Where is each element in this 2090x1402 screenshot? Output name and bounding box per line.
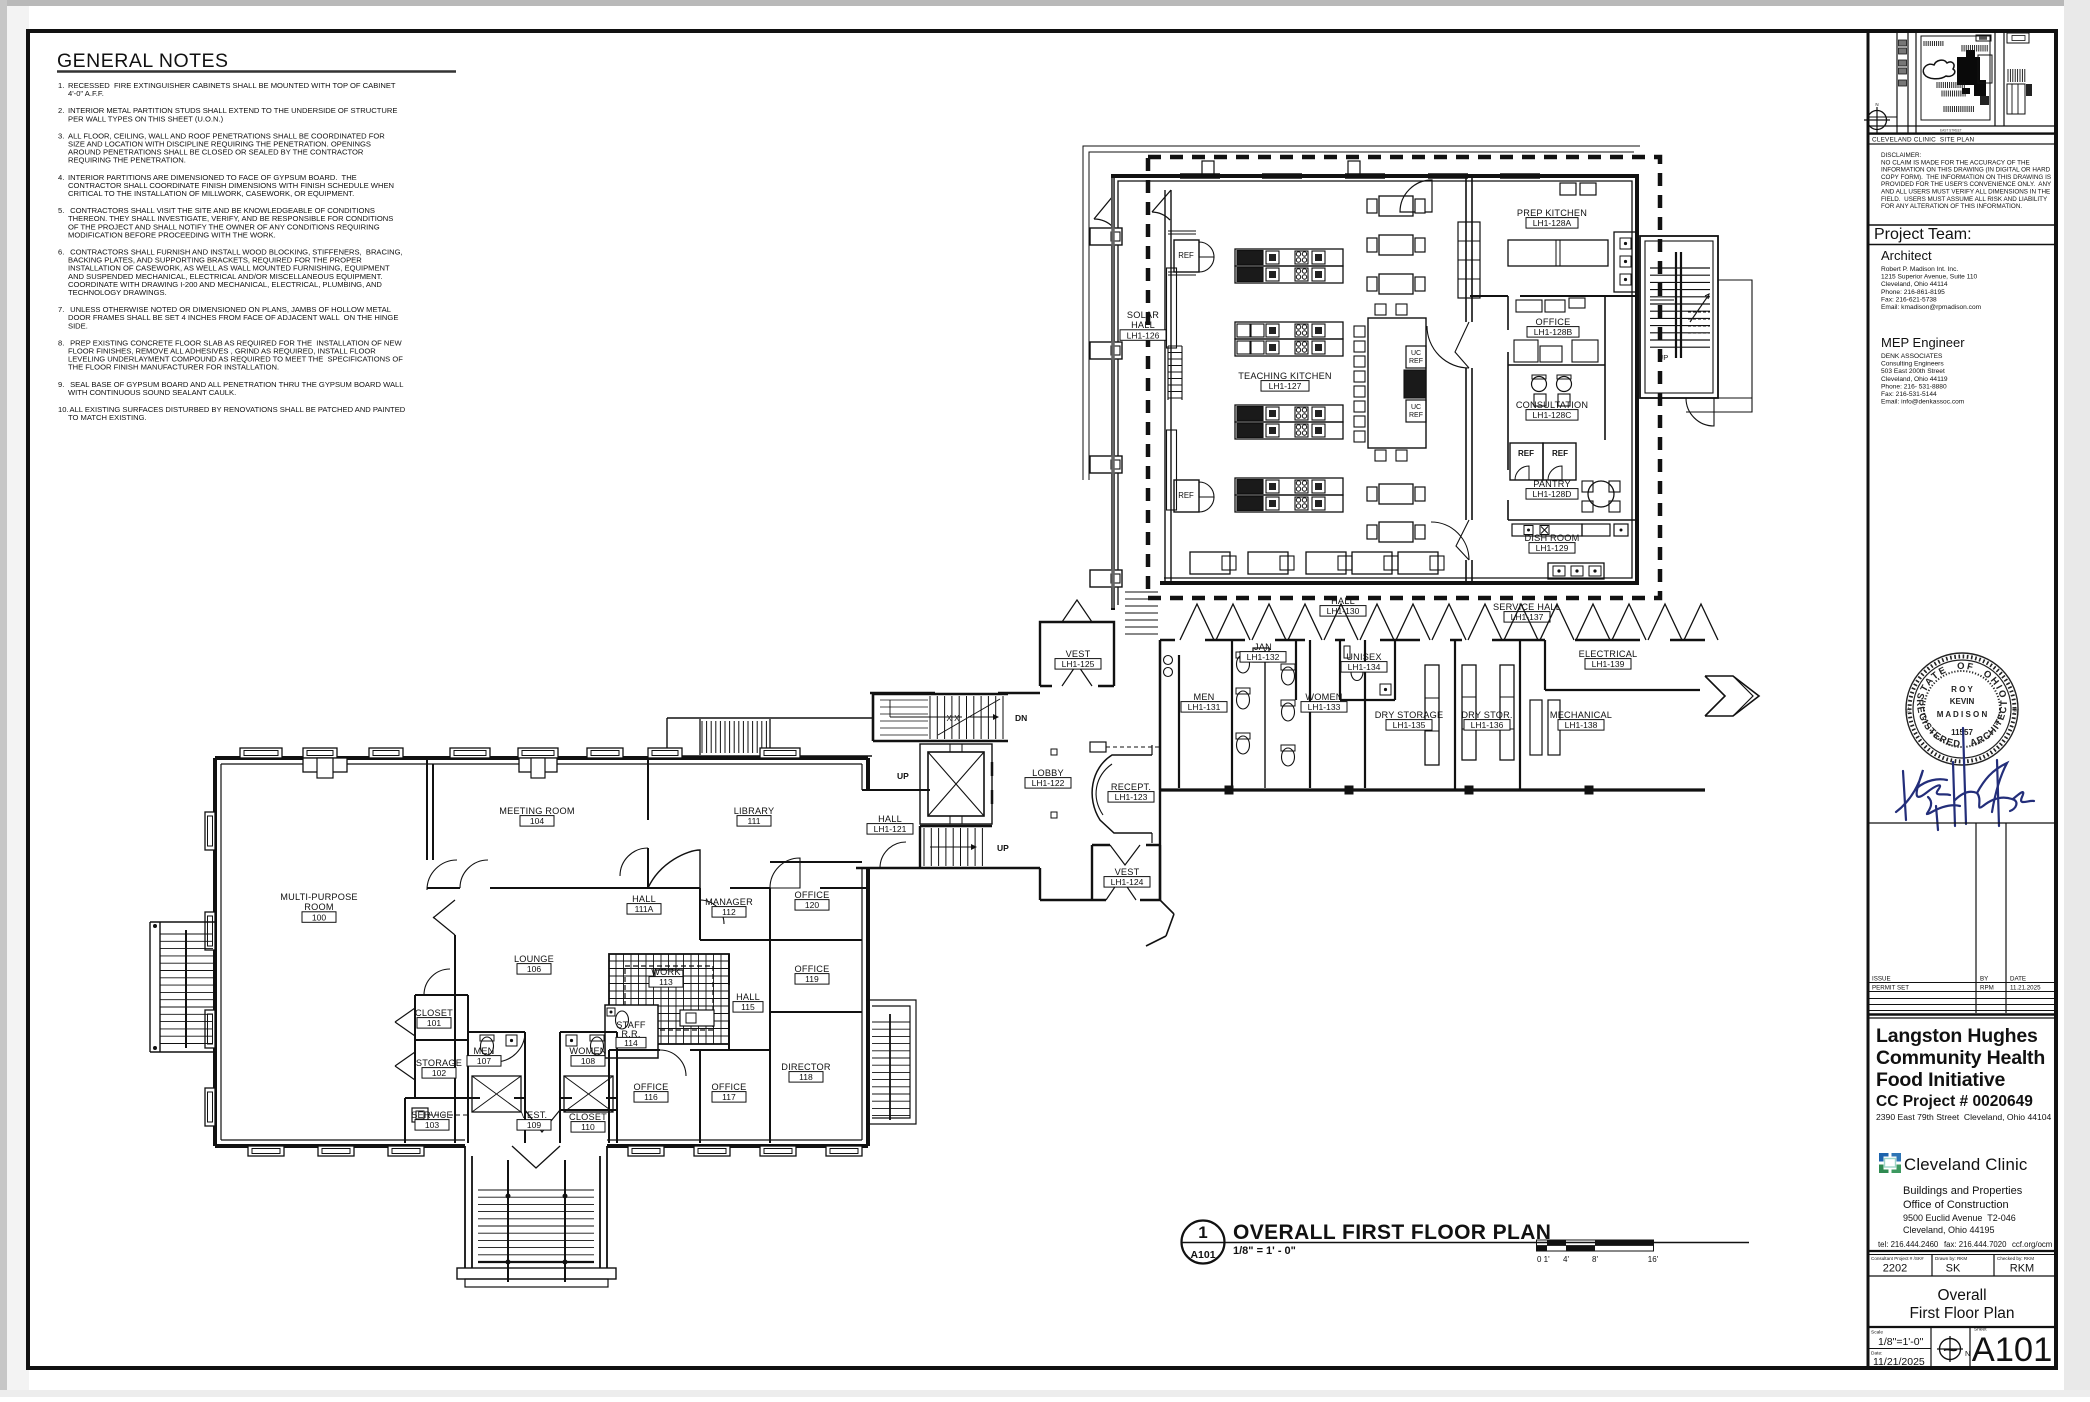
svg-text:16': 16' xyxy=(1648,1255,1659,1264)
svg-text:PREP KITCHEN: PREP KITCHEN xyxy=(1517,208,1587,218)
svg-text:CLOSET: CLOSET xyxy=(569,1112,607,1122)
svg-text:LH1-128A: LH1-128A xyxy=(1533,218,1572,228)
svg-text:LH1-128C: LH1-128C xyxy=(1533,410,1572,420)
svg-text:A101: A101 xyxy=(1190,1249,1215,1261)
svg-text:Community Health: Community Health xyxy=(1876,1047,2045,1069)
svg-text:INFORMATION ON THIS DRAWING (I: INFORMATION ON THIS DRAWING (IN DIGITAL … xyxy=(1881,167,2051,174)
svg-text:1: 1 xyxy=(1198,1223,1207,1242)
svg-text:HALL: HALL xyxy=(1131,320,1155,330)
svg-text:2202: 2202 xyxy=(1883,1263,1907,1275)
svg-text:MEETING ROOM: MEETING ROOM xyxy=(499,806,574,816)
svg-text:MODIFICATION BEFORE PROCEEDING: MODIFICATION BEFORE PROCEEDING WITH THE … xyxy=(68,230,276,239)
svg-text:TO MATCH EXISTING.: TO MATCH EXISTING. xyxy=(68,413,147,422)
svg-text:Phone: 216-861-8195: Phone: 216-861-8195 xyxy=(1881,289,1945,296)
svg-text:CRITICAL TO THE INSTALLATION O: CRITICAL TO THE INSTALLATION OF MILLWORK… xyxy=(68,189,354,198)
svg-text:Checked by: RKM: Checked by: RKM xyxy=(1997,1256,2034,1261)
svg-text:LH1-131: LH1-131 xyxy=(1188,702,1221,712)
svg-text:112: 112 xyxy=(722,907,736,917)
svg-text:HALL: HALL xyxy=(632,894,656,904)
svg-text:Buildings and Properties: Buildings and Properties xyxy=(1903,1185,2023,1197)
svg-text:ROOM: ROOM xyxy=(304,902,333,912)
svg-text:106: 106 xyxy=(527,964,542,974)
svg-text:LIBRARY: LIBRARY xyxy=(734,806,775,816)
svg-text:PROVIDED FOR THE USER'S CONVEN: PROVIDED FOR THE USER'S CONVENIENCE ONLY… xyxy=(1881,181,2052,188)
svg-text:R O Y: R O Y xyxy=(1951,685,1973,694)
svg-text:HALL: HALL xyxy=(736,992,760,1002)
svg-text:LH1-127: LH1-127 xyxy=(1269,381,1302,391)
svg-text:REF: REF xyxy=(1409,412,1423,419)
svg-text:Email: info@denkassoc.com: Email: info@denkassoc.com xyxy=(1881,399,1965,406)
svg-text:LH1-133: LH1-133 xyxy=(1308,702,1341,712)
svg-text:THE FLOOR FINISH MANUFACTURER: THE FLOOR FINISH MANUFACTURER FOR INSTAL… xyxy=(68,363,279,372)
svg-text:NO CLAIM IS MADE FOR THE ACCUR: NO CLAIM IS MADE FOR THE ACCURACY OF THE xyxy=(1881,159,2030,166)
svg-text:102: 102 xyxy=(432,1068,447,1078)
svg-text:Cleveland, Ohio 44195: Cleveland, Ohio 44195 xyxy=(1903,1225,1995,1235)
svg-text:107: 107 xyxy=(477,1056,492,1066)
svg-text:111A: 111A xyxy=(635,904,654,914)
svg-text:LH1-125: LH1-125 xyxy=(1062,659,1095,669)
svg-text:LH1-128D: LH1-128D xyxy=(1533,489,1572,499)
svg-text:MEN: MEN xyxy=(473,1046,494,1056)
svg-text:WORK: WORK xyxy=(651,967,681,977)
svg-text:119: 119 xyxy=(805,974,819,984)
svg-text:DIRECTOR: DIRECTOR xyxy=(781,1062,831,1072)
svg-text:3.: 3. xyxy=(58,131,64,140)
svg-text:LH1-121: LH1-121 xyxy=(874,824,907,834)
svg-text:4': 4' xyxy=(1563,1255,1569,1264)
svg-text:N: N xyxy=(1875,102,1878,107)
svg-text:RKM: RKM xyxy=(2010,1263,2034,1275)
svg-text:Phone: 216- 531-8880: Phone: 216- 531-8880 xyxy=(1881,383,1947,390)
svg-text:First Floor Plan: First Floor Plan xyxy=(1909,1305,2014,1322)
svg-text:tel: 216.444.2460: tel: 216.444.2460 xyxy=(1878,1240,1939,1249)
svg-text:PANTRY: PANTRY xyxy=(1533,479,1571,489)
svg-text:Consultant Project # /SK#: Consultant Project # /SK# xyxy=(1871,1256,1924,1261)
svg-text:Langston Hughes: Langston Hughes xyxy=(1876,1025,2038,1047)
svg-text:5.: 5. xyxy=(58,206,64,215)
svg-text:AND ALL USERS MUST VERIFY ALL: AND ALL USERS MUST VERIFY ALL DIMENSIONS… xyxy=(1881,189,2050,196)
svg-text:10.: 10. xyxy=(58,405,69,414)
svg-text:X X: X X xyxy=(947,714,961,723)
svg-text:WITH CONTINUOUS SOUND SEALANT: WITH CONTINUOUS SOUND SEALANT CAULK. xyxy=(68,388,236,397)
svg-text:OFFICE: OFFICE xyxy=(1536,317,1571,327)
svg-text:Fax: 216-531-5144: Fax: 216-531-5144 xyxy=(1881,391,1937,398)
svg-text:109: 109 xyxy=(527,1120,542,1130)
svg-text:4'-0" A.F.F.: 4'-0" A.F.F. xyxy=(68,89,104,98)
svg-text:MEP Engineer: MEP Engineer xyxy=(1881,335,1965,350)
svg-text:DOOR FRAMES SHALL BE SET 4 INC: DOOR FRAMES SHALL BE SET 4 INCHES FROM F… xyxy=(68,313,398,322)
svg-text:7.: 7. xyxy=(58,305,64,314)
svg-text:Overall: Overall xyxy=(1937,1287,1986,1304)
svg-text:RECESSED FIRE EXTINGUISHER CA: RECESSED FIRE EXTINGUISHER CABINETS SHAL… xyxy=(68,81,396,90)
svg-text:SERVICE HALL: SERVICE HALL xyxy=(1493,602,1561,612)
svg-text:1215 Superior Avenue, Suite 11: 1215 Superior Avenue, Suite 110 xyxy=(1881,274,1978,281)
svg-text:UNISEX: UNISEX xyxy=(1346,652,1381,662)
svg-text:SK: SK xyxy=(1946,1263,1961,1275)
svg-text:A101: A101 xyxy=(1972,1331,2053,1369)
svg-text:103: 103 xyxy=(425,1120,440,1130)
svg-text:108: 108 xyxy=(581,1056,596,1066)
svg-text:Email: kmadison@rpmadison.com: Email: kmadison@rpmadison.com xyxy=(1881,304,1982,311)
svg-text:VEST.: VEST. xyxy=(521,1110,548,1120)
svg-text:9.: 9. xyxy=(58,380,64,389)
svg-text:LH1-134: LH1-134 xyxy=(1348,662,1381,672)
svg-text:LH1-126: LH1-126 xyxy=(1127,330,1160,340)
svg-text:OFFICE: OFFICE xyxy=(634,1082,669,1092)
svg-text:PERMIT SET: PERMIT SET xyxy=(1872,985,1909,992)
svg-text:OFFICE: OFFICE xyxy=(795,890,830,900)
svg-text:RPM: RPM xyxy=(1980,985,1994,992)
svg-text:2390 East 79th Street Clevela: 2390 East 79th Street Cleveland, Ohio 44… xyxy=(1876,1112,2052,1122)
svg-text:1/8" = 1' - 0": 1/8" = 1' - 0" xyxy=(1233,1245,1296,1257)
svg-text:UC: UC xyxy=(1411,404,1421,411)
svg-text:PER WALL TYPES ON THIS SHEET (: PER WALL TYPES ON THIS SHEET (U.O.N.) xyxy=(68,114,224,123)
svg-text:Project Team:: Project Team: xyxy=(1874,226,1972,243)
svg-text:SOLAR: SOLAR xyxy=(1127,310,1159,320)
svg-text:11.21.2025: 11.21.2025 xyxy=(2010,985,2041,992)
svg-text:GENERAL NOTES: GENERAL NOTES xyxy=(57,50,229,72)
svg-text:LH1-123: LH1-123 xyxy=(1115,792,1148,802)
svg-text:REQUIRING THE PENETRATION.: REQUIRING THE PENETRATION. xyxy=(68,156,186,165)
svg-text:120: 120 xyxy=(805,900,820,910)
svg-text:ISSUE: ISSUE xyxy=(1872,976,1891,983)
svg-text:UC: UC xyxy=(1411,350,1421,357)
svg-text:Cleveland Clinic: Cleveland Clinic xyxy=(1904,1155,2028,1174)
svg-text:REF: REF xyxy=(1518,449,1534,458)
svg-text:fax: 216.444.7020: fax: 216.444.7020 xyxy=(1944,1240,2007,1249)
svg-text:CC Project # 0020649: CC Project # 0020649 xyxy=(1876,1093,2033,1110)
svg-text:CLEVELAND CLINIC SITE PLAN: CLEVELAND CLINIC SITE PLAN xyxy=(1872,137,1975,144)
svg-text:SIDE.: SIDE. xyxy=(68,321,88,330)
svg-text:REF: REF xyxy=(1178,491,1194,500)
svg-text:LH1-135: LH1-135 xyxy=(1393,720,1426,730)
svg-text:Cleveland, Ohio 44119: Cleveland, Ohio 44119 xyxy=(1881,376,1948,383)
svg-text:Drawn by: RKM: Drawn by: RKM xyxy=(1935,1256,1967,1261)
svg-text:VEST: VEST xyxy=(1066,649,1091,659)
svg-text:LOUNGE: LOUNGE xyxy=(514,954,554,964)
svg-text:☆: ☆ xyxy=(2011,705,2019,715)
svg-text:DISCLAIMER:: DISCLAIMER: xyxy=(1881,152,1921,159)
svg-text:TEACHING KITCHEN: TEACHING KITCHEN xyxy=(1238,371,1332,381)
svg-text:113: 113 xyxy=(659,977,673,987)
svg-text:111: 111 xyxy=(748,816,761,826)
svg-text:FOR ANY ALTERATION OF THIS INF: FOR ANY ALTERATION OF THIS INFORMATION. xyxy=(1881,203,2022,210)
svg-text:OFFICE: OFFICE xyxy=(795,964,830,974)
svg-text:104: 104 xyxy=(530,816,545,826)
svg-text:8.: 8. xyxy=(58,338,64,347)
svg-text:ELECTRICAL: ELECTRICAL xyxy=(1579,649,1638,659)
svg-text:LH1-122: LH1-122 xyxy=(1032,778,1065,788)
svg-text:DRY STORAGE: DRY STORAGE xyxy=(1375,710,1444,720)
svg-text:11/21/2025: 11/21/2025 xyxy=(1873,1356,1925,1368)
svg-text:Architect: Architect xyxy=(1881,248,1932,263)
svg-text:Consulting Engineers: Consulting Engineers xyxy=(1881,361,1944,368)
svg-text:REF: REF xyxy=(1552,449,1568,458)
svg-text:DN: DN xyxy=(1015,713,1027,723)
svg-text:FIELD. USERS MUST ASSUME ALL: FIELD. USERS MUST ASSUME ALL RISK AND LI… xyxy=(1881,196,2048,203)
svg-text:1/8"=1'-0": 1/8"=1'-0" xyxy=(1878,1336,1924,1348)
svg-text:MEN: MEN xyxy=(1193,692,1214,702)
svg-text:LH1-128B: LH1-128B xyxy=(1534,327,1573,337)
svg-text:M A D I S O N: M A D I S O N xyxy=(1937,710,1988,719)
svg-text:MECHANICAL: MECHANICAL xyxy=(1550,710,1612,720)
svg-text:MULTI-PURPOSE: MULTI-PURPOSE xyxy=(280,892,357,902)
svg-text:DRY STOR.: DRY STOR. xyxy=(1461,710,1512,720)
svg-text:114: 114 xyxy=(624,1038,638,1048)
svg-text:EAST STREET: EAST STREET xyxy=(1940,129,1962,133)
svg-text:115: 115 xyxy=(741,1002,755,1012)
svg-text:LH1-129: LH1-129 xyxy=(1536,543,1569,553)
svg-text:LH1-139: LH1-139 xyxy=(1592,659,1625,669)
svg-text:8': 8' xyxy=(1592,1255,1598,1264)
svg-text:2.: 2. xyxy=(58,106,64,115)
svg-text:LOBBY: LOBBY xyxy=(1032,768,1064,778)
svg-text:116: 116 xyxy=(644,1092,658,1102)
svg-text:N: N xyxy=(1965,1349,1970,1358)
svg-text:LH1-136: LH1-136 xyxy=(1471,720,1504,730)
svg-text:UP: UP xyxy=(897,771,909,781)
svg-text:101: 101 xyxy=(427,1018,442,1028)
svg-text:CLOSET: CLOSET xyxy=(415,1008,453,1018)
svg-text:TECHNOLOGY DRAWINGS.: TECHNOLOGY DRAWINGS. xyxy=(68,288,167,297)
svg-text:LH1-124: LH1-124 xyxy=(1111,877,1144,887)
svg-text:OFFICE: OFFICE xyxy=(712,1082,747,1092)
svg-text:HALL: HALL xyxy=(878,814,902,824)
svg-text:REF: REF xyxy=(1409,358,1423,365)
svg-text:RECEPT.: RECEPT. xyxy=(1111,782,1151,792)
svg-text:JAN: JAN xyxy=(1254,642,1272,652)
svg-text:COPY FORM). THE INFORMATION O: COPY FORM). THE INFORMATION ON THIS DRAW… xyxy=(1881,174,2051,181)
svg-text:VEST: VEST xyxy=(1115,867,1140,877)
svg-text:Robert P. Madison Int. Inc.: Robert P. Madison Int. Inc. xyxy=(1881,266,1958,273)
svg-text:117: 117 xyxy=(722,1092,736,1102)
svg-text:Fax: 216-621-5738: Fax: 216-621-5738 xyxy=(1881,296,1937,303)
svg-text:REF: REF xyxy=(1178,251,1194,260)
svg-text:HALL: HALL xyxy=(1331,596,1355,606)
svg-text:SERVICE: SERVICE xyxy=(411,1110,453,1120)
svg-text:ccf.org/ocm: ccf.org/ocm xyxy=(2012,1240,2052,1249)
svg-text:503 East 200th Street: 503 East 200th Street xyxy=(1881,368,1945,375)
svg-text:STORAGE: STORAGE xyxy=(416,1058,462,1068)
svg-text:Cleveland, Ohio 44114: Cleveland, Ohio 44114 xyxy=(1881,281,1948,288)
svg-text:KEVIN: KEVIN xyxy=(1950,697,1975,706)
svg-text:UP: UP xyxy=(997,843,1009,853)
svg-text:UP: UP xyxy=(1658,353,1668,362)
svg-text:BY: BY xyxy=(1980,976,1988,983)
svg-text:WOMEN: WOMEN xyxy=(569,1046,606,1056)
svg-text:0 1': 0 1' xyxy=(1537,1255,1550,1264)
svg-text:110: 110 xyxy=(581,1122,595,1132)
svg-text:1.: 1. xyxy=(58,81,64,90)
svg-text:MANAGER: MANAGER xyxy=(705,897,753,907)
svg-text:LH1-138: LH1-138 xyxy=(1565,720,1598,730)
svg-text:WOMEN: WOMEN xyxy=(1305,692,1342,702)
svg-text:4.: 4. xyxy=(58,173,64,182)
svg-text:Food Initiative: Food Initiative xyxy=(1876,1069,2006,1091)
svg-text:9500 Euclid Avenue T2-046: 9500 Euclid Avenue T2-046 xyxy=(1903,1213,2016,1223)
svg-text:DATE: DATE xyxy=(2010,976,2026,983)
svg-text:CONSULTATION: CONSULTATION xyxy=(1516,400,1588,410)
svg-text:Office of Construction: Office of Construction xyxy=(1903,1199,2009,1211)
svg-text:OVERALL FIRST FLOOR PLAN: OVERALL FIRST FLOOR PLAN xyxy=(1233,1221,1551,1244)
svg-text:6.: 6. xyxy=(58,248,64,257)
svg-text:118: 118 xyxy=(799,1072,813,1082)
svg-text:100: 100 xyxy=(312,912,327,922)
svg-text:LH1-132: LH1-132 xyxy=(1247,652,1280,662)
svg-text:DENK ASSOCIATES: DENK ASSOCIATES xyxy=(1881,353,1943,360)
svg-text:Scale: Scale xyxy=(1871,1330,1883,1336)
svg-text:☆: ☆ xyxy=(1904,705,1912,715)
